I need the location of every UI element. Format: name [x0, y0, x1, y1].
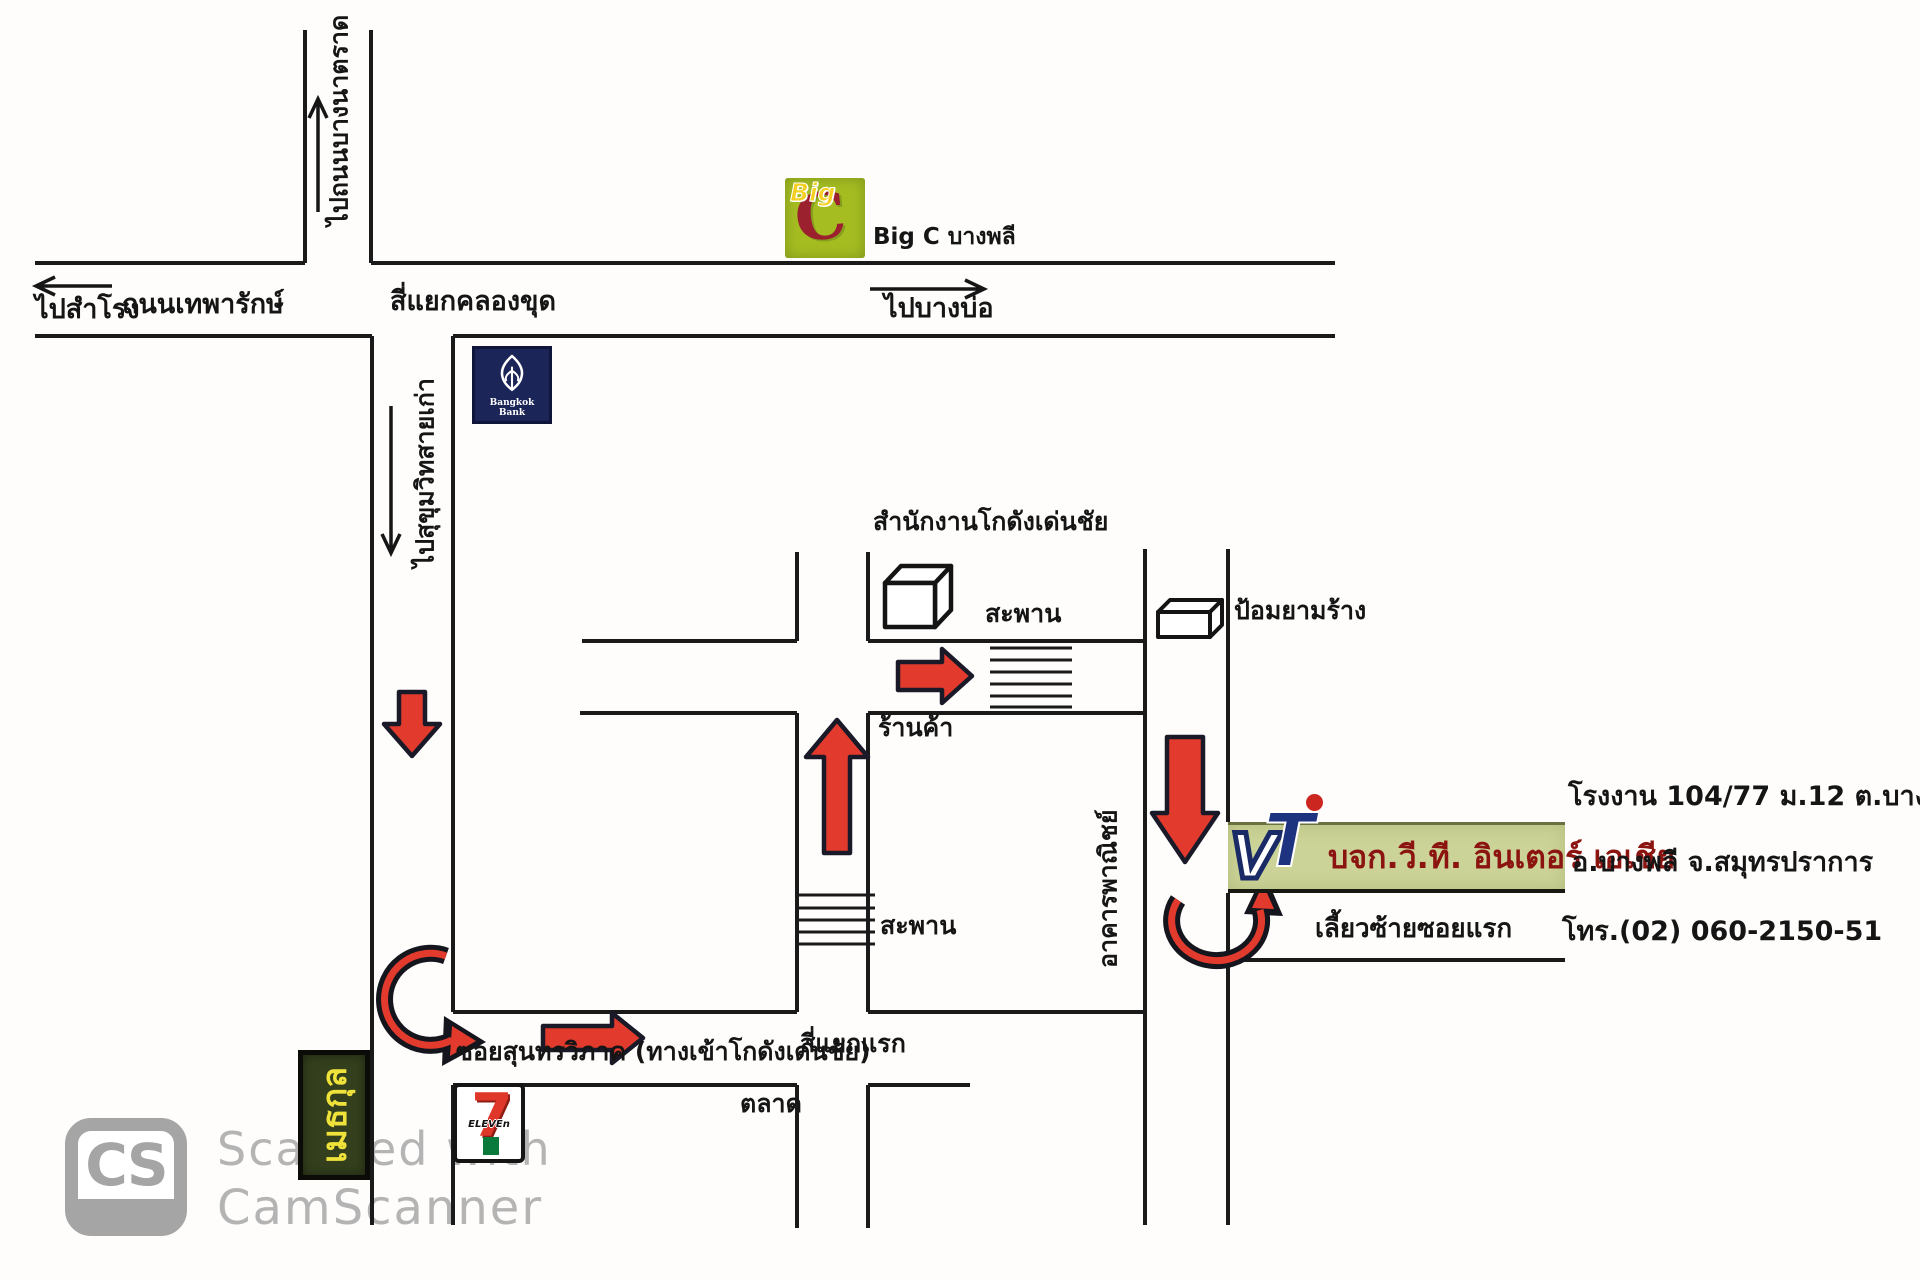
warehouse-office-label: สำนักงานโกดังเด่นชัย: [873, 508, 1108, 536]
label-layer: ไปสำโรง ถนนเทพารักษ์ สี่แยกคลองขุด ไปถนน…: [0, 0, 1920, 1280]
shop-label: ร้านค้า: [878, 714, 953, 742]
district-address-label: อ.บางพลี จ.สมุทรปราการ: [1572, 848, 1873, 878]
vt-logo: V T: [1230, 796, 1330, 901]
big-c-label: Big C บางพลี: [873, 225, 1016, 250]
khlong-khut-intersection-label: สี่แยกคลองขุด: [390, 287, 556, 317]
to-bangna-trad-label: ไปถนนบางนาตราด: [325, 26, 353, 226]
factory-address-label: โรงงาน 104/77 ม.12 ต.บางปลา: [1568, 782, 1920, 812]
seven-eleven-logo: 7 ELEVEn: [453, 1083, 525, 1163]
methakul-sign-text: เมธกุล: [307, 1067, 361, 1163]
camscanner-logo: CS: [65, 1118, 187, 1236]
to-old-sukhumvit-label: ไปสุขุมวิทสายเก่า: [411, 363, 439, 583]
first-intersection-label: สี่แยกแรก: [800, 1030, 906, 1058]
bridge-upper-label: สะพาน: [985, 600, 1061, 628]
to-bang-bo-label: ไปบางบ่อ: [884, 294, 994, 324]
thepharak-road-label: ถนนเทพารักษ์: [122, 290, 284, 320]
vt-logo-dot-icon: [1306, 794, 1323, 811]
phone-label: โทร.(02) 060-2150-51: [1562, 917, 1882, 947]
seven-eleven-green-icon: [483, 1137, 499, 1155]
seven-eleven-text: ELEVEn: [457, 1119, 521, 1130]
bangkok-bank-label: Bangkok Bank: [475, 398, 549, 418]
camscanner-logo-bar: [78, 1199, 174, 1223]
big-c-logo: C Big: [785, 178, 865, 258]
scanned-map-page: Scanned with CamScanner: [0, 0, 1920, 1280]
vt-logo-t: T: [1264, 798, 1314, 884]
methakul-sign: เมธกุล: [298, 1050, 370, 1180]
camscanner-cs-icon: CS: [78, 1131, 174, 1199]
turn-left-first-soi-label: เลี้ยวซ้ายซอยแรก: [1315, 915, 1512, 944]
market-label: ตลาด: [740, 1090, 802, 1118]
big-c-word: Big: [790, 178, 836, 207]
bridge-lower-label: สะพาน: [880, 912, 956, 940]
bangkok-bank-logo: Bangkok Bank: [472, 346, 552, 424]
bangkok-bank-lotus-icon: [494, 354, 530, 396]
guard-post-label: ป้อมยามร้าง: [1234, 597, 1366, 625]
commercial-building-label: อาคารพาณิชย์: [1094, 789, 1122, 989]
